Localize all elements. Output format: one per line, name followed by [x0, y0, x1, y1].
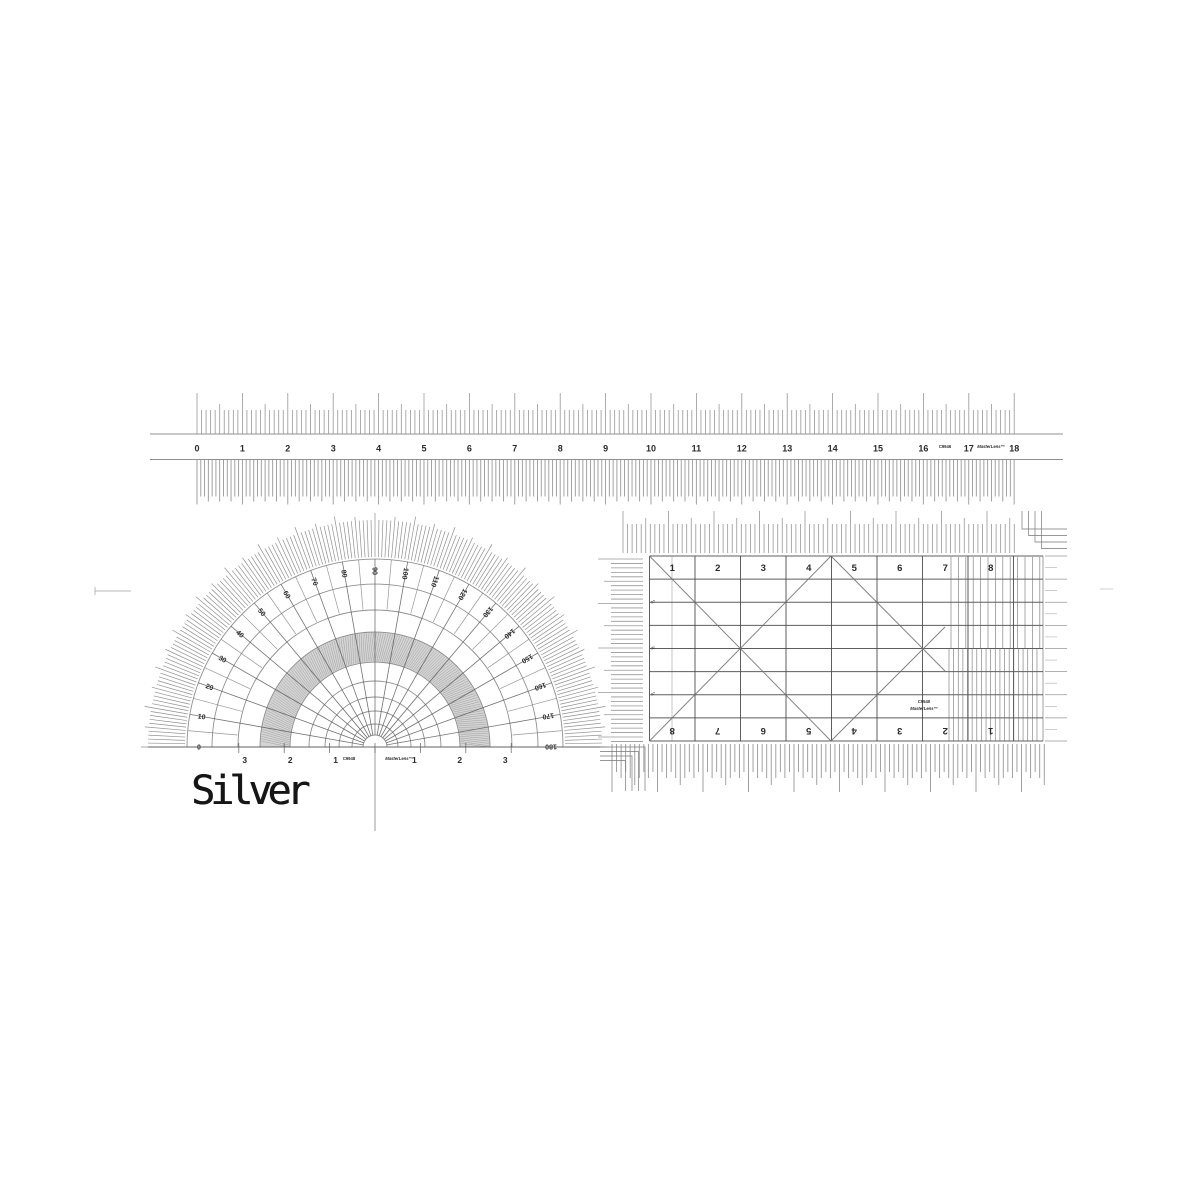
tick-line: [238, 566, 260, 596]
tick-line: [277, 538, 294, 575]
tick-line: [363, 520, 365, 557]
tick-line: [145, 727, 186, 731]
corner-bracket: [1042, 511, 1068, 549]
tick-line: [488, 639, 529, 668]
tick-line: [220, 581, 245, 608]
grid-number-top: 2: [715, 563, 720, 574]
ruler-number: 15: [873, 444, 883, 454]
degree-label: 20: [204, 683, 214, 692]
degree-label: 30: [217, 655, 227, 665]
tick-line: [502, 578, 527, 605]
tick-line: [295, 527, 310, 568]
grid-number-bottom: 7: [715, 725, 720, 736]
tick-line: [446, 537, 460, 571]
tick-line: [527, 610, 557, 632]
degree-label: 80: [339, 569, 347, 578]
grid-number-bottom: 8: [670, 725, 675, 736]
tick-line: [395, 521, 399, 558]
tick-line: [204, 598, 232, 622]
tick-line: [212, 589, 239, 615]
degree-label: 160: [533, 681, 546, 692]
degree-label: 0: [197, 745, 201, 752]
degree-label: 110: [429, 575, 439, 588]
tick-line: [166, 658, 200, 672]
grid-number-top: 6: [897, 563, 902, 574]
tick-line: [290, 537, 304, 571]
tick-line: [152, 704, 188, 711]
measuring-tools-illustration: 0123456789101112131415161718C9946MasterL…: [0, 0, 1200, 1200]
tick-line: [411, 524, 418, 560]
ruler-number: 12: [737, 444, 747, 454]
tick-line: [831, 556, 945, 671]
grid-number-top: 3: [761, 563, 766, 574]
ruler-number: 11: [692, 444, 702, 454]
degree-label: 100: [400, 567, 409, 580]
tick-line: [326, 565, 339, 613]
tick-line: [294, 535, 307, 570]
grid-number-bottom: 5: [805, 725, 811, 736]
tick-line: [248, 559, 269, 590]
degree-label: 170: [542, 711, 555, 720]
tick-line: [529, 614, 559, 636]
tick-line: [564, 727, 605, 731]
tick-line: [196, 607, 225, 630]
tick-line: [355, 517, 359, 558]
tick-line: [473, 614, 508, 649]
tick-line: [489, 566, 511, 596]
tick-line: [565, 735, 602, 737]
tick-line: [478, 557, 498, 588]
tick-line: [534, 623, 565, 643]
tick-line: [232, 571, 255, 600]
tick-line: [443, 535, 456, 570]
tick-line: [328, 525, 336, 561]
base-scale-number: 1: [412, 755, 417, 765]
degree-label: 120: [456, 587, 468, 601]
tick-line: [166, 649, 203, 666]
tick-line: [551, 662, 585, 676]
grid-number-bottom: 2: [943, 725, 948, 736]
ruler-number: 0: [194, 444, 199, 454]
tick-line: [495, 571, 518, 600]
ruler-number: 6: [467, 444, 472, 454]
tick-line: [452, 540, 467, 574]
tick-line: [242, 614, 277, 649]
tick-line: [554, 667, 595, 682]
grid-number-bottom: 6: [761, 725, 766, 736]
product-code: C9948: [343, 756, 356, 761]
grid-number-bottom: 1: [987, 725, 993, 736]
tick-line: [324, 526, 332, 562]
ruler-number: 17: [964, 444, 974, 454]
degree-label: 90: [371, 567, 378, 575]
ruler-number: 10: [646, 444, 656, 454]
tick-line: [267, 593, 296, 634]
tick-line: [552, 666, 587, 679]
ruler-number: 9: [603, 444, 608, 454]
tick-line: [385, 520, 387, 557]
tick-line: [191, 614, 221, 636]
tick-line: [454, 593, 483, 634]
tick-line: [194, 610, 224, 632]
base-scale-number: 2: [288, 755, 293, 765]
degree-label: 130: [481, 605, 494, 619]
ruler-number: 5: [421, 444, 426, 454]
tick-line: [371, 520, 372, 557]
tick-line: [242, 563, 264, 593]
tick-line: [487, 563, 509, 593]
tick-line: [206, 595, 233, 620]
tick-line: [199, 604, 228, 627]
tick-line: [492, 568, 515, 597]
tick-line: [565, 739, 602, 740]
tick-line: [516, 595, 543, 620]
tick-line: [320, 527, 329, 563]
tick-line: [251, 557, 271, 588]
tick-line: [185, 623, 216, 643]
ruler-number: 1: [240, 444, 245, 454]
brand-logo: MasterLens™: [385, 756, 412, 761]
ruler-number: 7: [512, 444, 517, 454]
degree-label: 70: [309, 577, 318, 587]
tick-line: [415, 525, 423, 561]
ruler-number: 18: [1009, 444, 1019, 454]
tick-line: [182, 627, 213, 647]
tick-line: [149, 731, 186, 734]
tick-line: [411, 565, 424, 613]
tick-line: [525, 607, 554, 630]
tick-line: [481, 559, 502, 590]
base-scale-number: 1: [333, 755, 338, 765]
tick-line: [500, 576, 524, 604]
tick-line: [217, 584, 243, 611]
tick-line: [145, 706, 188, 714]
tick-line: [155, 692, 191, 701]
tick-line: [382, 520, 383, 557]
photo-artifacts: [95, 587, 1113, 595]
tick-line: [418, 526, 426, 562]
tick-line: [334, 517, 342, 560]
tick-line: [536, 627, 567, 647]
tick-line: [209, 592, 236, 617]
grid-number-top: 7: [943, 563, 948, 574]
degree-label: 180: [545, 743, 557, 750]
product-code: C9946: [939, 444, 952, 449]
product-photo: 0123456789101112131415161718C9946MasterL…: [0, 0, 1200, 1200]
tick-line: [523, 604, 552, 627]
tick-line: [565, 731, 602, 734]
tick-line: [549, 655, 583, 670]
corner-bracket: [1035, 511, 1067, 542]
product-code: C9540: [918, 699, 931, 704]
tick-line: [168, 655, 202, 670]
tick-line: [421, 527, 430, 563]
corner-bracket: [600, 752, 639, 792]
tick-line: [235, 568, 258, 597]
grid-number-bottom: 4: [851, 725, 857, 736]
tick-line: [514, 592, 541, 617]
tick-line: [831, 627, 945, 741]
tick-line: [559, 692, 595, 701]
grid-number-top: 8: [988, 563, 993, 574]
base-scale-number: 3: [503, 755, 508, 765]
silver-label: Silver: [191, 768, 306, 814]
degree-label: 40: [234, 629, 245, 639]
ruler-18-inch: 0123456789101112131415161718C9946MasterL…: [150, 393, 1063, 505]
ruler-number: 14: [828, 444, 838, 454]
tick-line: [193, 698, 241, 711]
grid-number-bottom: 3: [897, 725, 902, 736]
base-scale-number: 3: [242, 755, 247, 765]
ruler-number: 13: [782, 444, 792, 454]
tick-line: [392, 517, 396, 558]
tick-line: [512, 589, 539, 615]
tick-line: [547, 649, 584, 666]
tick-line: [550, 658, 584, 672]
brand-logo: MasterLens™: [977, 444, 1004, 449]
corner-bracket: [600, 761, 626, 792]
grid-number-top: 4: [806, 563, 812, 574]
tick-line: [149, 723, 186, 727]
tick-line: [351, 521, 355, 558]
tick-line: [408, 517, 416, 560]
degree-label: 50: [256, 608, 266, 619]
tick-line: [440, 527, 455, 568]
tick-line: [221, 639, 262, 668]
tick-line: [359, 521, 362, 558]
base-scale-number: 2: [457, 755, 462, 765]
grid-ruler: 1827364554637281¼½¾C9540MasterLens™: [598, 511, 1067, 792]
tick-line: [561, 700, 597, 708]
tick-line: [163, 666, 198, 679]
tick-line: [505, 581, 530, 608]
tick-line: [226, 576, 250, 604]
tick-line: [518, 598, 546, 622]
tick-line: [283, 540, 298, 574]
ruler-number: 16: [918, 444, 928, 454]
tick-line: [508, 698, 556, 711]
tick-line: [148, 743, 185, 744]
grid-side-label: ¼: [651, 600, 656, 604]
ruler-number: 4: [376, 444, 381, 454]
tick-line: [564, 723, 601, 727]
brand-logo: MasterLens™: [910, 706, 937, 711]
tick-line: [155, 667, 196, 682]
ruler-number: 2: [285, 444, 290, 454]
tick-line: [560, 696, 596, 704]
ruler-number: 8: [558, 444, 563, 454]
tick-line: [286, 538, 300, 572]
tick-line: [565, 743, 602, 744]
tick-line: [507, 584, 533, 611]
grid-side-label: ¾: [651, 692, 656, 696]
tick-line: [148, 735, 185, 737]
ruler-number: 3: [331, 444, 336, 454]
tick-line: [165, 662, 199, 676]
corner-bracket: [600, 756, 632, 791]
tick-line: [332, 524, 339, 560]
tick-line: [154, 696, 190, 704]
tick-line: [148, 739, 185, 740]
tick-line: [255, 554, 275, 585]
corner-bracket: [1029, 511, 1068, 536]
tick-line: [153, 700, 189, 708]
tick-line: [455, 538, 472, 575]
grid-number-top: 1: [670, 563, 676, 574]
tick-line: [562, 704, 598, 711]
grid-number-top: 5: [852, 563, 858, 574]
tick-line: [449, 538, 463, 572]
degree-label: 140: [502, 627, 516, 640]
tick-line: [476, 554, 496, 585]
degree-label: 10: [197, 713, 206, 721]
tick-line: [187, 620, 218, 641]
tick-line: [562, 706, 605, 714]
tick-line: [378, 520, 379, 557]
tick-line: [388, 521, 391, 558]
tick-line: [223, 578, 248, 605]
tick-line: [367, 520, 368, 557]
grid-side-label: ½: [651, 646, 656, 650]
tick-line: [533, 620, 564, 641]
